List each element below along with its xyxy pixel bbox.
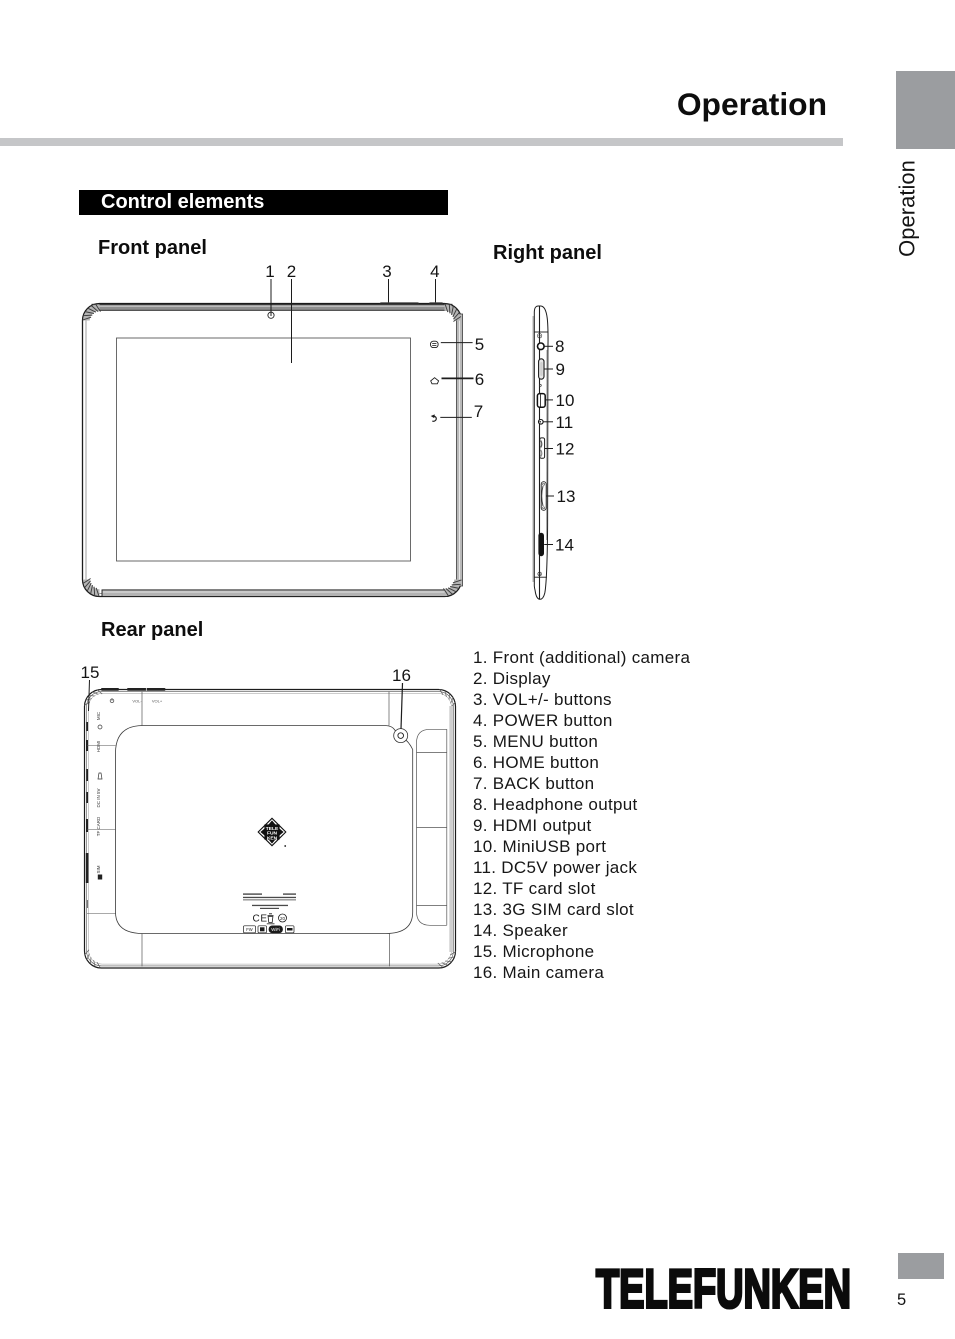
svg-text:HDMI: HDMI bbox=[96, 741, 101, 753]
svg-text:WiFi: WiFi bbox=[271, 927, 280, 932]
svg-text:10: 10 bbox=[556, 391, 575, 410]
svg-text:KEN: KEN bbox=[267, 836, 278, 842]
svg-text:16: 16 bbox=[392, 666, 411, 685]
svg-text:5: 5 bbox=[475, 335, 484, 354]
svg-text:8: 8 bbox=[555, 337, 564, 356]
svg-text:2: 2 bbox=[287, 262, 296, 281]
svg-text:VOL-: VOL- bbox=[132, 699, 142, 704]
svg-text:15: 15 bbox=[81, 663, 100, 682]
svg-text:DC IN 5V: DC IN 5V bbox=[96, 788, 101, 807]
svg-text:6: 6 bbox=[475, 370, 484, 389]
svg-text:TELEFUNKEN: TELEFUNKEN bbox=[596, 1260, 851, 1315]
svg-text:SIM: SIM bbox=[96, 865, 101, 873]
svg-text:3: 3 bbox=[382, 262, 391, 281]
svg-text:1: 1 bbox=[265, 262, 274, 281]
svg-text:14: 14 bbox=[555, 536, 574, 555]
svg-text:TF CARD: TF CARD bbox=[96, 816, 101, 836]
svg-text:7: 7 bbox=[474, 402, 483, 421]
svg-text:MIC: MIC bbox=[96, 711, 101, 720]
svg-text:9: 9 bbox=[556, 360, 565, 379]
svg-text:4: 4 bbox=[430, 262, 439, 281]
svg-text:11: 11 bbox=[556, 413, 574, 432]
svg-text:FW: FW bbox=[246, 927, 253, 932]
svg-text:12: 12 bbox=[556, 440, 575, 459]
svg-text:13: 13 bbox=[557, 487, 576, 506]
svg-text:VOL+: VOL+ bbox=[152, 699, 163, 704]
svg-text:CE: CE bbox=[253, 914, 268, 925]
svg-text:20: 20 bbox=[280, 916, 286, 921]
